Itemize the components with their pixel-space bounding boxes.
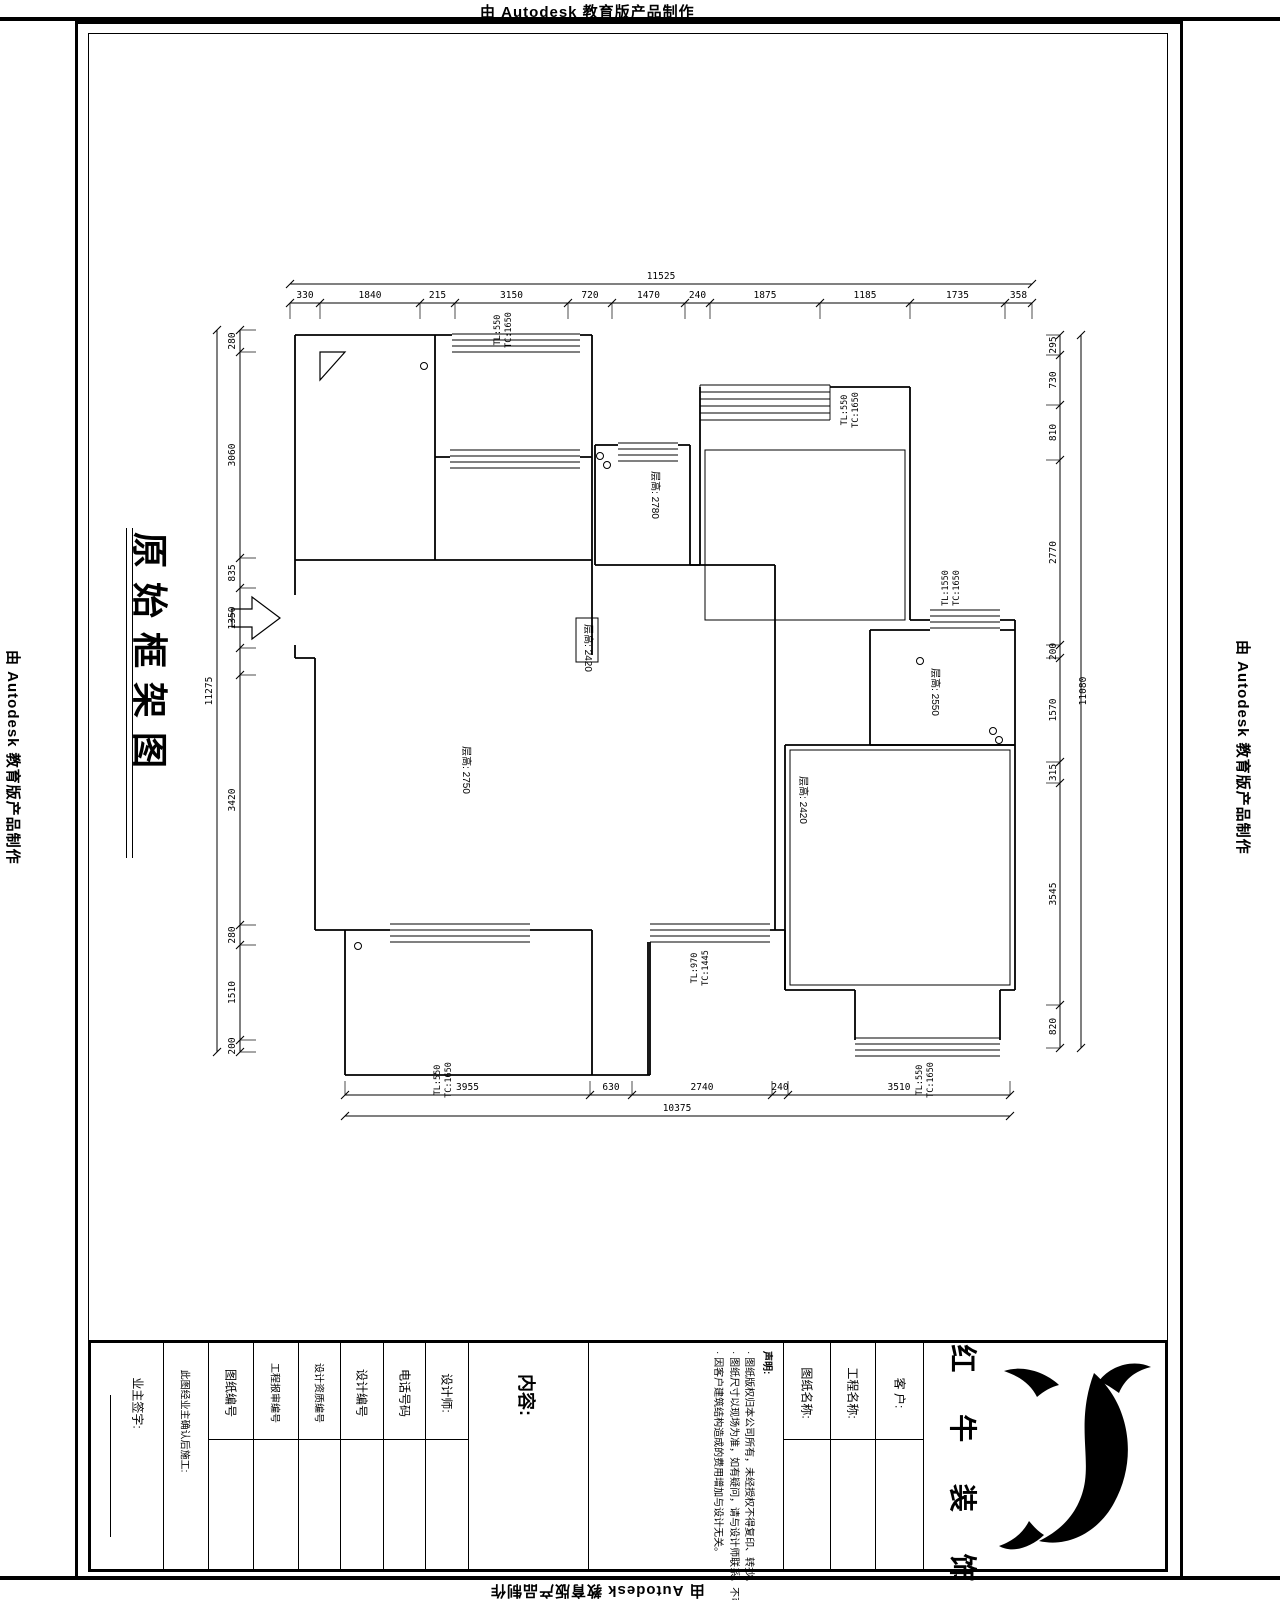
dim-label: 358 [1010,290,1027,301]
logo-text: 红 牛 装 饰 [944,1344,984,1597]
dim-label: 720 [581,290,598,301]
window-note: TC:1650 [444,1062,454,1098]
field-qualification-number: 设计资质编号 [298,1343,340,1569]
window-symbols [390,334,1000,1056]
dim-label: 3545 [1048,883,1059,906]
room-label: 层高: 2420 [797,776,810,824]
owner-note: 此图经业主确认后施工: [179,1370,194,1473]
signature-line[interactable] [110,1395,111,1537]
owner-signature-label: 业主签字: [129,1377,146,1428]
field-sheet-name: 图纸名称: [783,1343,830,1569]
dim-label: 730 [1048,371,1059,388]
dim-label: 3060 [227,443,238,466]
dim-label: 2740 [691,1082,714,1093]
field-label: 设计资质编号 [312,1363,327,1423]
window-note: TC:1650 [926,1062,936,1098]
dim-label: 1350 [227,606,238,629]
field-label: 图纸编号 [223,1369,240,1417]
field-approval-number: 工程报审编号 [253,1343,298,1569]
dim-label: 810 [1048,424,1059,441]
field-client: 客 户: [875,1343,923,1569]
dim-label: 200 [1048,643,1059,660]
field-drawing-number: 图纸编号 [208,1343,253,1569]
dim-label: 1840 [359,290,382,301]
dim-label: 1875 [754,290,777,301]
window-note: TL:970 [690,953,700,984]
field-label: 图纸名称: [799,1367,816,1418]
owner-signature-cell: 业主签字: [91,1343,163,1569]
field-phone-number: 电话号码 [383,1343,425,1569]
field-label: 工程名称: [845,1367,862,1418]
fold-corner-symbol [320,352,345,380]
entrance-arrow-icon [232,597,280,639]
field-label: 工程报审编号 [269,1363,284,1423]
content-label: 内容: [514,1374,540,1416]
window-note: TC:1650 [504,312,514,348]
title-block: 业主签字: 此图经业主确认后施工: 图纸编号 工程报审编号 设计资质编号 设计编… [88,1340,1168,1572]
dim-label: 11525 [647,271,676,282]
dim-label: 215 [429,290,446,301]
dim-label: 820 [1048,1018,1059,1035]
dim-label: 1570 [1048,698,1059,721]
dim-label: 315 [1048,764,1059,781]
dim-label: 280 [227,332,238,349]
statement-item: · 因客户建筑结构造成的费用增加与设计无关。 [710,1351,726,1567]
drawing-sheet: 由 Autodesk 教育版产品制作 由 Autodesk 教育版产品制作 由 … [0,0,1280,1600]
dim-label: 3420 [227,788,238,811]
window-note: TC:1650 [952,570,962,606]
dim-label: 240 [689,290,706,301]
dim-label: 280 [227,926,238,943]
dim-label: 630 [602,1082,619,1093]
dim-label: 835 [227,564,238,581]
window-note: TL:550 [433,1065,443,1096]
field-designer: 设计师: [425,1343,468,1569]
bull-logo-icon [999,1361,1159,1556]
statement-title: 声明: [759,1351,775,1567]
content-cell: 内容: [468,1343,588,1569]
room-label: 层高: 2780 [649,471,662,519]
dim-label: 3150 [500,290,523,301]
dim-label: 1735 [946,290,969,301]
dim-label: 330 [296,290,313,301]
dim-label: 240 [771,1082,788,1093]
window-note: TL:1550 [941,570,951,606]
statement-item: · 图纸版权归本公司所有，未经授权不得复印、转抄。 [741,1351,757,1567]
dim-label: 295 [1048,336,1059,353]
statement-cell: 声明: · 图纸版权归本公司所有，未经授权不得复印、转抄。 · 图纸尺寸以现场为… [588,1343,783,1569]
dim-label: 200 [227,1037,238,1054]
statement-item: · 图纸尺寸以现场为准，如有疑问，请与设计师联系，不可度量本图。 [726,1351,742,1567]
window-note: TC:1650 [851,392,861,428]
field-designer-number: 设计编号 [340,1343,383,1569]
dim-label: 11275 [204,677,215,706]
dimension-chains: 3301840215315072014702401875118517353581… [204,271,1089,1120]
room-label: 层高: 2550 [929,668,942,716]
dim-label: 3510 [888,1082,911,1093]
window-note: TL:550 [493,315,503,346]
field-label: 电话号码 [396,1369,413,1417]
statement-text: 声明: · 图纸版权归本公司所有，未经授权不得复印、转抄。 · 图纸尺寸以现场为… [596,1351,774,1567]
field-label: 设计编号 [354,1369,371,1417]
dim-label: 2770 [1048,541,1059,564]
dim-label: 10375 [663,1103,692,1114]
room-label: 层高: 2750 [460,746,473,794]
dim-label: 1470 [637,290,660,301]
window-notes: TL:550 TC:1650 TL:550 TC:1650 TL:1550 TC… [433,312,962,1098]
window-note: TL:550 [840,395,850,426]
dim-label: 11080 [1078,676,1089,705]
field-label: 客 户: [891,1378,908,1409]
dim-label: 1185 [854,290,877,301]
walls [295,335,1015,1075]
field-project-name: 工程名称: [830,1343,875,1569]
window-note: TC:1445 [701,950,711,986]
field-label: 设计师: [439,1373,456,1412]
owner-note-cell: 此图经业主确认后施工: [163,1343,208,1569]
window-note: TL:550 [915,1065,925,1096]
logo-cell: 红 牛 装 饰 [923,1343,1171,1569]
dim-label: 3955 [456,1082,479,1093]
dim-label: 1510 [227,981,238,1004]
room-label: 层高: 2420 [582,624,595,672]
inner-wall-lines [576,450,1010,985]
